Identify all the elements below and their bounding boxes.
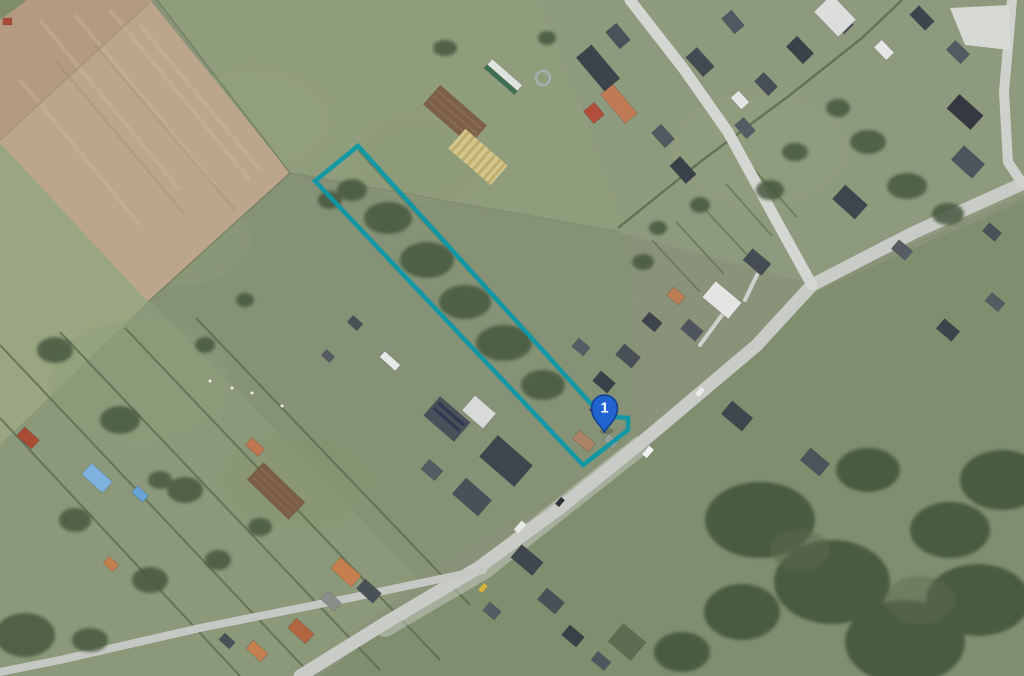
aerial-map-view[interactable]: 1 — [0, 0, 1024, 676]
satellite-imagery-layer — [0, 0, 1024, 676]
pin-label: 1 — [600, 401, 608, 417]
aerial-map[interactable]: 1 — [0, 0, 1024, 676]
